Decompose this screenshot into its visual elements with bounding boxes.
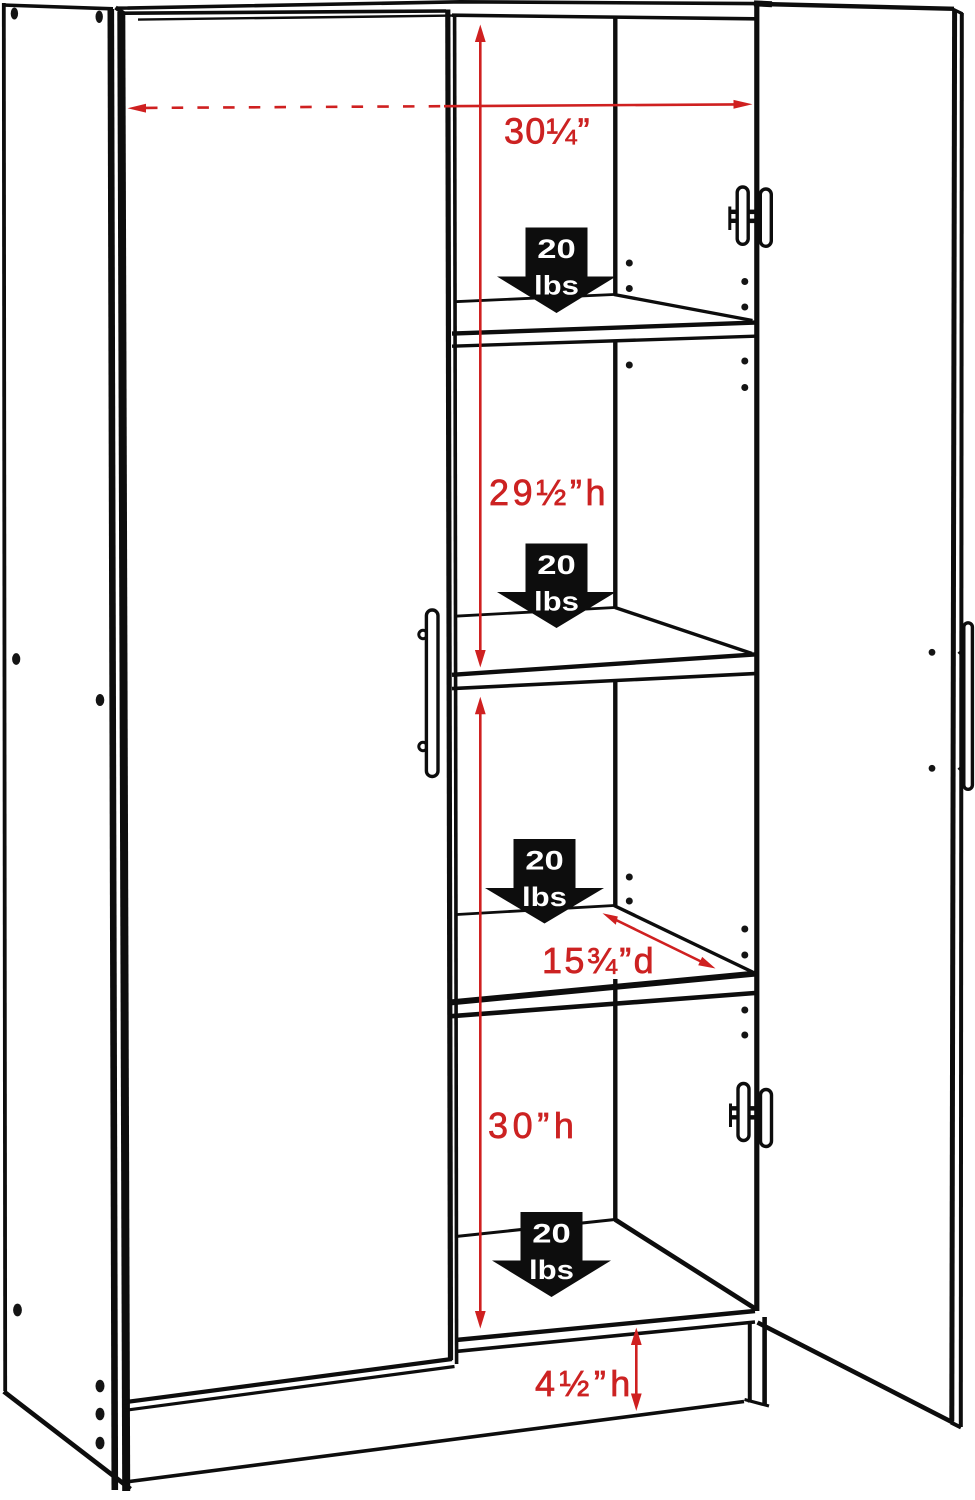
svg-text:lbs: lbs bbox=[534, 587, 579, 617]
svg-text:29½”h: 29½”h bbox=[489, 472, 609, 513]
svg-text:lbs: lbs bbox=[522, 882, 567, 912]
svg-text:20: 20 bbox=[537, 550, 576, 580]
svg-text:lbs: lbs bbox=[534, 271, 579, 301]
svg-text:15¾”d: 15¾”d bbox=[542, 940, 656, 981]
svg-text:30¼”: 30¼” bbox=[504, 111, 591, 152]
svg-text:lbs: lbs bbox=[529, 1255, 574, 1285]
svg-text:30”h: 30”h bbox=[488, 1105, 578, 1146]
svg-text:4½”h: 4½”h bbox=[535, 1363, 635, 1404]
svg-text:20: 20 bbox=[525, 846, 564, 876]
svg-text:20: 20 bbox=[537, 234, 576, 264]
svg-text:20: 20 bbox=[532, 1219, 571, 1249]
